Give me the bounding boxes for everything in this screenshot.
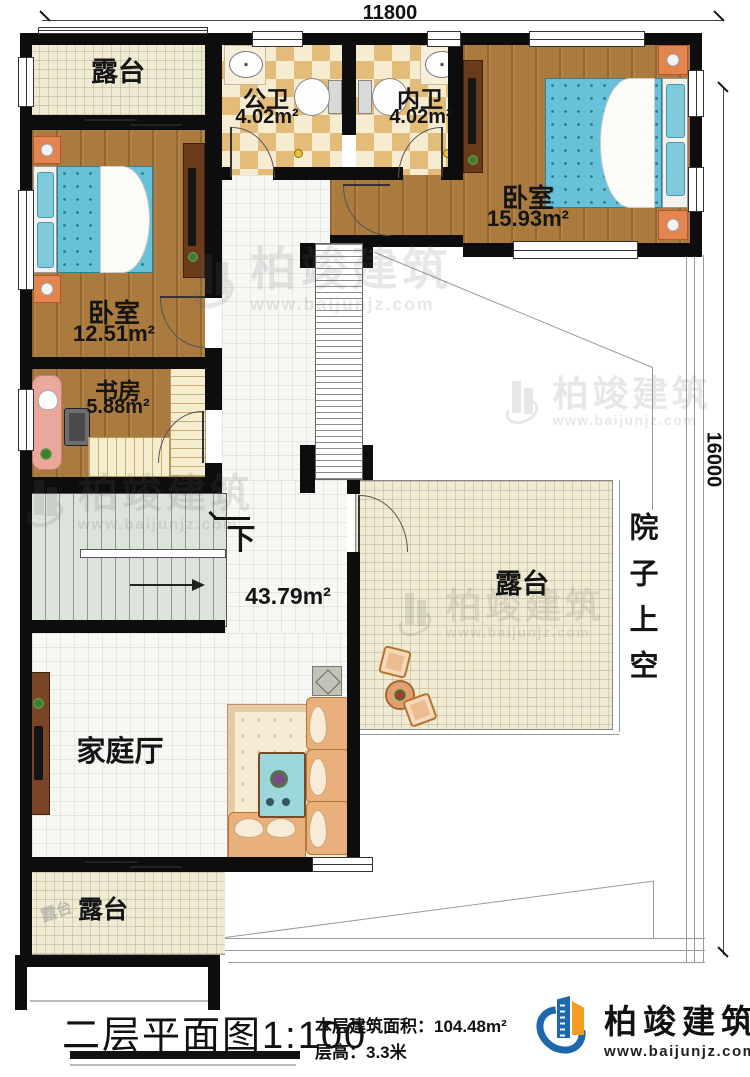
sink-icon [229, 51, 263, 78]
wall [638, 243, 702, 257]
brand-logo-icon [534, 994, 598, 1060]
area-study: 5.88m² [78, 396, 158, 419]
courtyard-edge [694, 255, 695, 962]
label-terrace-mid: 露台 [484, 562, 560, 601]
area-private-bath: 4.02m² [376, 106, 466, 129]
wall [347, 480, 360, 494]
wall [342, 43, 356, 135]
label-terrace-bottom: 露台 [68, 890, 138, 926]
wall [273, 167, 403, 180]
wall [15, 955, 27, 1010]
door-leaf [441, 127, 443, 177]
wall [205, 33, 222, 130]
wall [463, 243, 513, 257]
pillow [666, 84, 685, 138]
stairs [30, 493, 227, 627]
watermark: 柏竣建筑 www.baijunjz.com [505, 376, 711, 428]
label-courtyard: 院子上空 [626, 512, 662, 732]
label-family-hall: 家庭厅 [58, 728, 182, 770]
sliding-door [85, 119, 137, 121]
area-public-bath: 4.02m² [222, 106, 312, 129]
area-bedroom-left: 12.51m² [62, 321, 166, 347]
plant-icon [188, 252, 198, 262]
table-decor [266, 798, 274, 806]
sofa-pillow [309, 706, 327, 744]
stair-handrail [80, 549, 226, 558]
window [513, 241, 638, 259]
courtyard-edge [225, 950, 705, 951]
side-table-inlay [315, 669, 340, 694]
sofa-pillow [234, 818, 264, 838]
window [529, 31, 645, 47]
bed-blanket [600, 78, 655, 208]
wall [208, 955, 220, 1010]
roof-line [653, 881, 654, 938]
door-leaf [202, 411, 204, 463]
window [18, 57, 34, 107]
window [18, 389, 34, 451]
sliding-door [85, 861, 137, 863]
sliding-door [130, 866, 182, 868]
watermark-brand: 柏竣建筑 [553, 376, 711, 412]
wall [20, 357, 205, 369]
window [252, 31, 303, 47]
wall [205, 130, 222, 298]
window [18, 190, 34, 290]
toilet-tank [358, 80, 372, 114]
window [427, 31, 461, 47]
roof-line [225, 881, 653, 938]
courtyard-edge [225, 938, 705, 939]
table-flowers [268, 768, 290, 790]
stair-direction-arrow [192, 579, 205, 591]
courtyard-edge [228, 962, 705, 963]
right-dimension-label: 16000 [702, 425, 725, 495]
brand-url: www.baijunjz.com [604, 1043, 750, 1060]
nightstand [658, 210, 688, 240]
right-dimension-line [723, 88, 724, 955]
wall [27, 620, 225, 633]
area-bedroom-right: 15.93m² [478, 206, 578, 232]
tv-icon [34, 726, 43, 780]
pillow [37, 172, 54, 218]
area-family-hall: 43.79m² [243, 583, 333, 610]
side-table [312, 666, 342, 696]
sliding-door [130, 124, 182, 126]
wall [15, 955, 220, 967]
roof-line [652, 367, 653, 510]
terrace-top-railing [38, 27, 208, 34]
tv-icon [468, 78, 476, 144]
title-underline [70, 1051, 300, 1059]
label-stairs-down: 下 [222, 516, 260, 558]
watermark-logo-icon [505, 381, 543, 422]
plant-icon [468, 155, 478, 165]
wall [300, 445, 315, 493]
table-decor [282, 798, 290, 806]
stairwell-railing [315, 243, 363, 480]
sofa-pillow [309, 758, 327, 796]
door-knob [294, 149, 303, 158]
hat-icon [38, 390, 58, 410]
watermark-url: www.baijunjz.com [553, 413, 711, 428]
brand-name: 柏竣建筑 [604, 995, 750, 1043]
floor-plan: 11800 16000 [0, 0, 750, 1077]
title-underline-thin [70, 1064, 296, 1066]
toilet-tank [328, 80, 342, 114]
roof-line [375, 252, 653, 368]
pillow [37, 222, 54, 268]
window [688, 167, 704, 212]
courtyard-edge [686, 255, 687, 962]
porch-line [30, 1000, 208, 1002]
top-dimension-label: 11800 [340, 2, 440, 25]
wall [363, 243, 373, 268]
plant-icon [33, 698, 44, 709]
wall [347, 552, 360, 857]
wall [232, 857, 312, 872]
wall [20, 857, 232, 872]
wall [205, 348, 222, 410]
pillow [666, 142, 685, 196]
nightstand [33, 136, 61, 164]
wall [20, 33, 32, 957]
sofa-pillow [309, 810, 327, 848]
window [688, 70, 704, 117]
label-terrace-top: 露台 [68, 50, 168, 89]
terrace-edge [355, 734, 619, 735]
wall [441, 167, 463, 180]
sofa-pillow [266, 818, 296, 838]
floor-area-text: 本层建筑面积：104.48m² [315, 1012, 507, 1037]
wall [20, 115, 208, 130]
tv-icon [188, 168, 196, 246]
wall [300, 243, 315, 268]
stair-direction-line [130, 584, 192, 586]
nightstand [658, 45, 688, 75]
plant-icon [40, 448, 52, 460]
nightstand [33, 275, 61, 303]
floor-height-text: 层高：3.3米 [315, 1038, 407, 1063]
wall [363, 445, 373, 480]
courtyard-edge [703, 255, 704, 962]
window [312, 857, 373, 872]
wall [20, 477, 213, 493]
brand-logo: 柏竣建筑 www.baijunjz.com [534, 994, 750, 1060]
